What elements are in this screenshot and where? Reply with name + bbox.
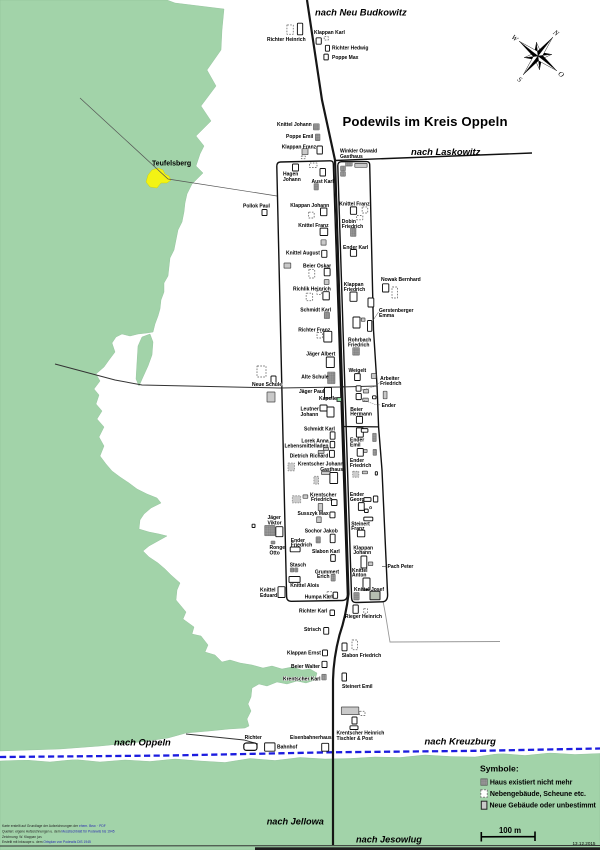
svg-text:Schmidt Karl: Schmidt Karl [304,426,335,432]
svg-text:Richter Heinrich: Richter Heinrich [267,37,306,43]
svg-text:Friedrich: Friedrich [344,287,365,293]
svg-text:Haus existiert nicht mehr: Haus existiert nicht mehr [490,780,573,787]
svg-text:Aust Karl: Aust Karl [312,179,335,185]
svg-text:Georg: Georg [350,497,365,503]
svg-text:Richter Hedwig: Richter Hedwig [332,46,368,52]
svg-text:Knittel Josef: Knittel Josef [354,587,384,593]
svg-text:Quellen: eigene Aufzeichnungen: Quellen: eigene Aufzeichnungen u. dem Me… [2,830,115,834]
svg-text:Knittel Alois: Knittel Alois [290,583,319,589]
svg-text:Klappan Franz: Klappan Franz [282,145,317,151]
svg-text:Steinert Emil: Steinert Emil [342,684,373,690]
svg-text:Ender Karl: Ender Karl [343,245,369,251]
svg-text:Richter Franz: Richter Franz [298,327,330,333]
svg-text:Weigelt: Weigelt [349,368,367,374]
svg-text:Friedrich: Friedrich [291,543,312,549]
svg-text:nach Jesowlug: nach Jesowlug [356,835,422,845]
svg-text:Stasch: Stasch [290,562,306,568]
svg-text:Knittel Johann: Knittel Johann [277,122,312,128]
svg-text:Neue Gebäude oder unbestimmt: Neue Gebäude oder unbestimmt [490,803,597,810]
svg-text:Neue Schule: Neue Schule [252,382,282,388]
svg-text:nach Jellowa: nach Jellowa [267,817,324,827]
svg-text:Erstellt mit Inkscape u. dem O: Erstellt mit Inkscape u. dem Ortsplan vo… [2,840,91,844]
svg-text:Sochor Jakob: Sochor Jakob [305,529,338,535]
svg-text:Friedrich: Friedrich [311,497,332,503]
svg-text:Friedrich: Friedrich [348,343,369,349]
svg-text:Podewils im Kreis Oppeln: Podewils im Kreis Oppeln [343,114,508,129]
svg-text:Anton: Anton [352,572,366,578]
svg-text:Gasthaus: Gasthaus [320,467,343,473]
svg-text:Knittel Franz: Knittel Franz [298,223,329,229]
svg-text:Knittel Franz: Knittel Franz [339,202,370,208]
svg-text:Klappan Karl: Klappan Karl [314,30,345,36]
svg-text:Erich: Erich [317,574,330,580]
svg-text:Symbole:: Symbole: [480,763,519,773]
svg-text:nach Neu Budkowitz: nach Neu Budkowitz [315,7,407,18]
svg-text:Gasthaus: Gasthaus [340,154,363,160]
svg-text:Tischler & Post: Tischler & Post [337,736,374,742]
svg-text:Emil: Emil [350,442,361,448]
svg-text:Jäger Paul: Jäger Paul [299,389,325,395]
svg-text:Friedrich: Friedrich [380,381,401,387]
svg-text:Pach Peter: Pach Peter [388,564,414,570]
svg-text:Kapelle: Kapelle [319,396,337,402]
svg-text:Poppe Emil: Poppe Emil [286,134,314,140]
svg-text:nach Kreuzburg: nach Kreuzburg [425,736,497,747]
svg-text:Knittel August: Knittel August [286,251,320,257]
svg-text:Johann: Johann [283,177,301,183]
svg-text:nach Oppeln: nach Oppeln [114,737,171,748]
svg-text:Lebensmittelladen: Lebensmittelladen [285,444,329,450]
svg-text:Friedrich: Friedrich [350,463,371,469]
svg-text:Slabon Friedrich: Slabon Friedrich [342,653,381,659]
svg-text:Bahnhof: Bahnhof [277,745,298,751]
svg-text:Eisenbahnerhaus: Eisenbahnerhaus [290,735,332,741]
svg-text:Klappan Ernst: Klappan Ernst [287,651,321,657]
svg-text:Slabon Karl: Slabon Karl [312,549,340,555]
svg-text:Rieger Heinrich: Rieger Heinrich [345,614,382,620]
svg-text:Richlik Heinrich: Richlik Heinrich [293,286,331,292]
svg-text:Krentscher Karl: Krentscher Karl [283,677,321,683]
svg-text:Dietrich Richard: Dietrich Richard [290,453,329,459]
svg-text:Johann: Johann [353,550,371,556]
svg-text:100 m: 100 m [499,826,521,835]
svg-text:nach Laskowitz: nach Laskowitz [411,146,481,157]
svg-text:Susszyk Max: Susszyk Max [298,511,329,517]
svg-text:Strisch: Strisch [304,627,321,633]
svg-text:13.12.2015: 13.12.2015 [573,841,596,846]
svg-text:Jäger Albert: Jäger Albert [306,352,335,358]
svg-text:Richter: Richter [245,735,262,741]
svg-text:Viktor: Viktor [268,520,282,526]
svg-text:Eduard: Eduard [260,593,277,599]
svg-text:Otto: Otto [270,551,280,557]
svg-text:Nowak Bernhard: Nowak Bernhard [381,277,421,283]
svg-text:Pollok Paul: Pollok Paul [243,204,271,210]
svg-text:Alte Schule: Alte Schule [301,374,328,380]
svg-text:Schmidt Karl: Schmidt Karl [300,307,331,313]
svg-text:Johann: Johann [301,412,319,418]
svg-text:Klappan Johann: Klappan Johann [290,203,329,209]
svg-text:Nebengebäude, Scheune etc.: Nebengebäude, Scheune etc. [490,791,586,798]
svg-text:Emma: Emma [379,313,394,319]
svg-text:Poppe Max: Poppe Max [332,55,359,61]
svg-text:Ender: Ender [382,403,396,409]
svg-text:Karte erstellt auf Grundlage d: Karte erstellt auf Grundlage der Aufzeic… [2,824,106,828]
svg-text:Beier Oskar: Beier Oskar [303,263,331,269]
svg-text:Richter Karl: Richter Karl [299,609,328,615]
svg-text:Zeichnung: W. Klappan jun.: Zeichnung: W. Klappan jun. [2,835,42,839]
svg-text:Friedrich: Friedrich [342,224,363,230]
svg-text:Humpa Karl: Humpa Karl [305,595,334,601]
svg-text:Franz: Franz [351,526,365,532]
svg-text:Hermann: Hermann [350,411,372,417]
svg-text:Teufelsberg: Teufelsberg [152,160,191,167]
svg-text:Beier Walter: Beier Walter [291,664,320,670]
